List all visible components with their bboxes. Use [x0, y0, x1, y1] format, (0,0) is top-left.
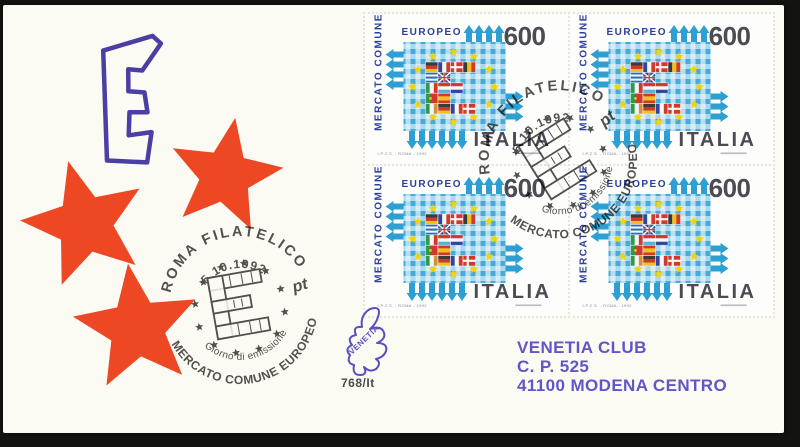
venetia-logo-text: VENETIA: [347, 323, 381, 356]
venetia-club-logo: VENETIA: [342, 305, 398, 377]
address-line-2: C. P. 525: [517, 357, 727, 376]
catalog-number: 768/It: [341, 376, 375, 390]
first-day-postmark: [133, 201, 346, 414]
photo-of-first-day-cover: MERCATO COMUNE EUROPEO 600 ITALIA I.P.Z.…: [0, 0, 800, 447]
recipient-address: VENETIA CLUB C. P. 525 41100 MODENA CENT…: [517, 338, 727, 395]
address-line-3: 41100 MODENA CENTRO: [517, 376, 727, 395]
envelope: VENETIA 768/It VENETIA CLUB C. P. 525 41…: [3, 5, 784, 433]
address-line-1: VENETIA CLUB: [517, 338, 727, 357]
